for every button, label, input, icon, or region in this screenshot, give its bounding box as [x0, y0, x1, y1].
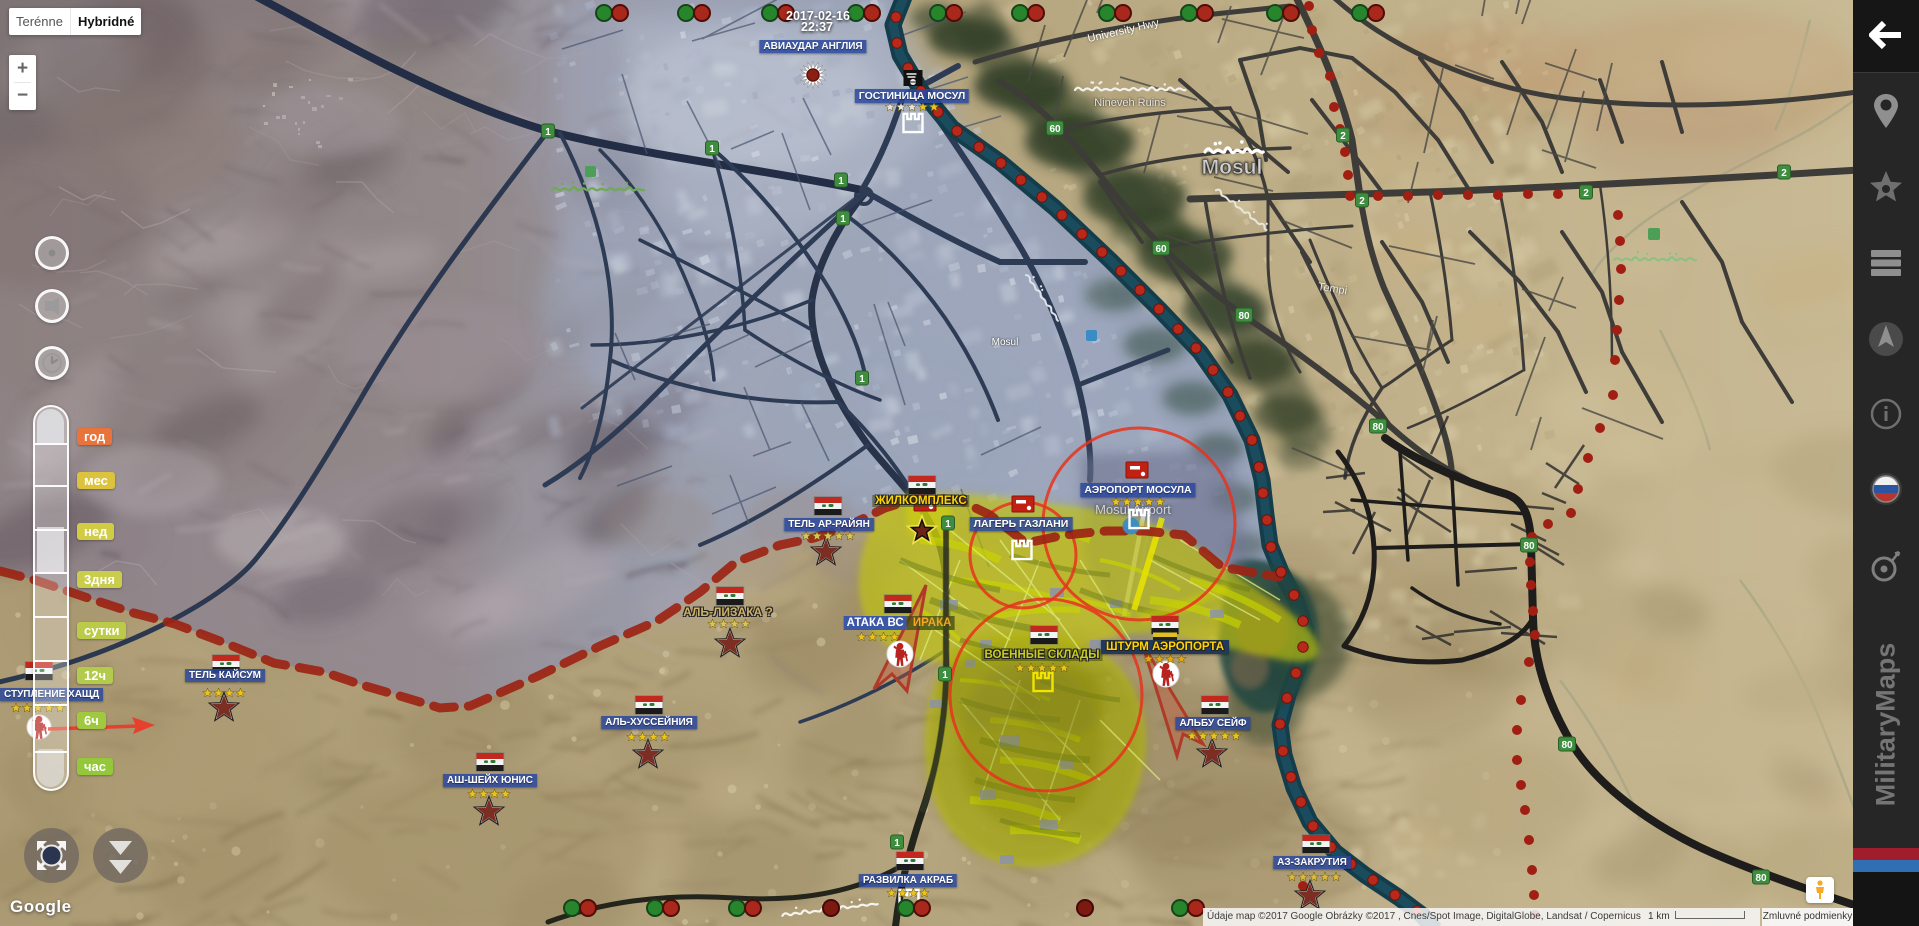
svg-text:22:37: 22:37 — [801, 20, 833, 34]
